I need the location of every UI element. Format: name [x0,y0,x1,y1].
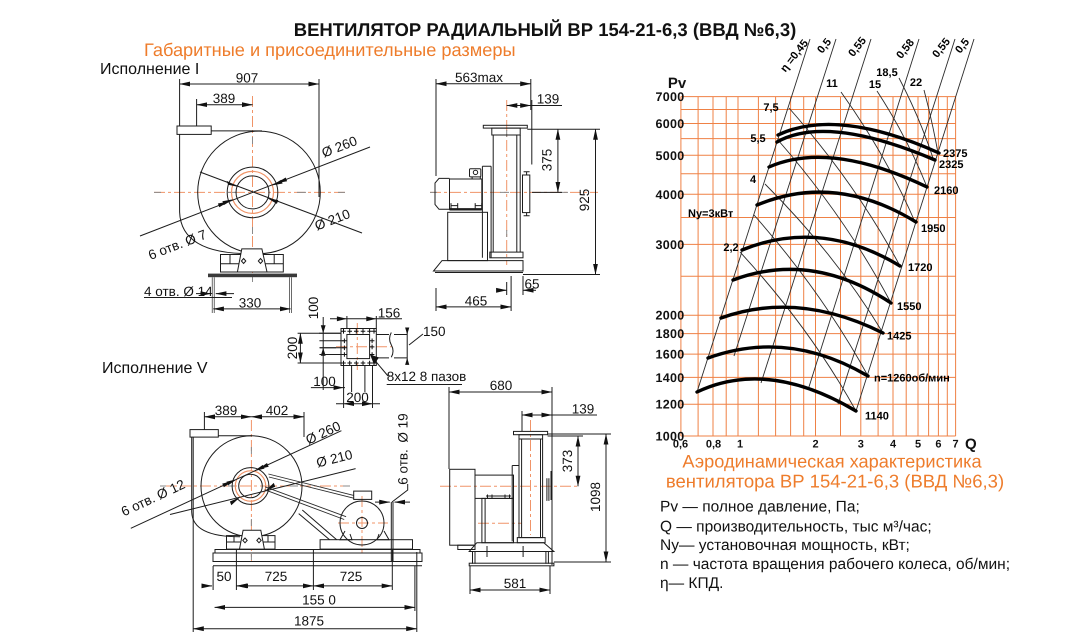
svg-text:2,2: 2,2 [723,242,738,254]
svg-text:Ny— установочная мощность, кВт: Ny— установочная мощность, кВт; [660,537,910,554]
svg-text:1600: 1600 [655,348,684,362]
svg-text:22: 22 [910,77,922,89]
svg-text:0,6: 0,6 [673,439,688,451]
svg-text:907: 907 [236,71,259,86]
svg-text:330: 330 [239,296,262,311]
svg-text:100: 100 [306,297,321,320]
svg-text:200: 200 [285,337,300,360]
svg-text:2325: 2325 [939,159,963,171]
svg-text:8x12 8 пазов: 8x12 8 пазов [387,369,467,384]
svg-text:465: 465 [465,294,488,309]
svg-text:4: 4 [890,439,897,451]
svg-text:4 отв. Ø 14: 4 отв. Ø 14 [144,284,213,299]
svg-text:402: 402 [266,403,289,418]
svg-text:6000: 6000 [655,117,684,131]
svg-text:вентилятора ВР 154-21-6,3 (ВВ: вентилятора ВР 154-21-6,3 (ВВД №6,3) [666,471,1004,492]
svg-text:15: 15 [869,79,881,91]
svg-text:925: 925 [577,189,592,212]
svg-text:6: 6 [935,439,941,451]
svg-text:100: 100 [313,374,336,389]
svg-text:ВЕНТИЛЯТОР РАДИАЛЬНЫЙ ВР 154-2: ВЕНТИЛЯТОР РАДИАЛЬНЫЙ ВР 154-21-6,3 (ВВД… [294,19,797,40]
svg-text:4000: 4000 [655,188,684,202]
svg-text:2000: 2000 [655,309,684,323]
svg-text:11: 11 [826,78,838,90]
svg-text:Исполнение I: Исполнение I [100,61,199,78]
svg-text:200: 200 [346,390,369,405]
svg-text:Pv — полное давление, Па;: Pv — полное давление, Па; [660,499,860,516]
svg-text:5,5: 5,5 [750,133,765,145]
svg-text:7: 7 [953,439,959,451]
svg-text:1098: 1098 [588,482,603,512]
svg-text:150: 150 [423,324,446,339]
svg-text:1400: 1400 [655,371,684,385]
svg-text:725: 725 [265,569,288,584]
svg-text:1800: 1800 [655,327,684,341]
svg-text:1550: 1550 [897,301,921,313]
svg-text:n — частота вращения рабочего: n — частота вращения рабочего колеса, об… [660,556,1010,573]
svg-text:725: 725 [340,569,363,584]
svg-text:Ø 19: Ø 19 [396,413,411,442]
svg-text:3: 3 [858,439,864,451]
svg-text:373: 373 [560,450,575,473]
svg-text:4: 4 [750,174,757,186]
svg-text:581: 581 [504,576,527,591]
svg-text:1720: 1720 [908,262,932,274]
svg-text:1200: 1200 [655,398,684,412]
svg-text:Ny=3кВт: Ny=3кВт [688,208,734,220]
svg-text:2160: 2160 [934,185,958,197]
svg-text:Габаритные и присоединительные: Габаритные и присоединительные размеры [144,40,516,60]
svg-text:7000: 7000 [655,90,684,104]
svg-text:50: 50 [216,569,231,584]
svg-text:156: 156 [378,306,401,321]
svg-text:18,5: 18,5 [876,67,897,79]
svg-text:6 отв.: 6 отв. [396,449,411,485]
svg-text:3000: 3000 [655,238,684,252]
svg-text:Q — производительность, тыс м: Q — производительность, тыс м³/час; [660,519,932,536]
svg-text:Аэродинамическая характеристик: Аэродинамическая характеристика [682,452,982,472]
svg-text:1425: 1425 [887,331,911,343]
svg-text:563max: 563max [455,70,503,85]
svg-text:375: 375 [540,149,555,172]
svg-text:7,5: 7,5 [763,102,778,114]
svg-text:139: 139 [537,92,560,107]
svg-text:Q: Q [965,436,977,453]
svg-text:Исполнение V: Исполнение V [102,360,208,377]
svg-text:0,8: 0,8 [706,439,721,451]
svg-text:1140: 1140 [865,411,889,423]
svg-text:389: 389 [215,403,238,418]
svg-text:5000: 5000 [655,149,684,163]
svg-text:155 0: 155 0 [302,593,336,608]
svg-text:139: 139 [572,402,595,417]
svg-text:n=1260об/мин: n=1260об/мин [874,373,950,385]
svg-text:1950: 1950 [921,223,945,235]
svg-text:5: 5 [915,439,921,451]
svg-text:η— КПД.: η— КПД. [660,575,723,592]
svg-text:1875: 1875 [294,614,324,629]
svg-text:680: 680 [490,378,513,393]
svg-text:1: 1 [737,439,743,451]
svg-text:65: 65 [524,277,539,292]
svg-text:389: 389 [213,91,236,106]
svg-text:2: 2 [812,439,818,451]
